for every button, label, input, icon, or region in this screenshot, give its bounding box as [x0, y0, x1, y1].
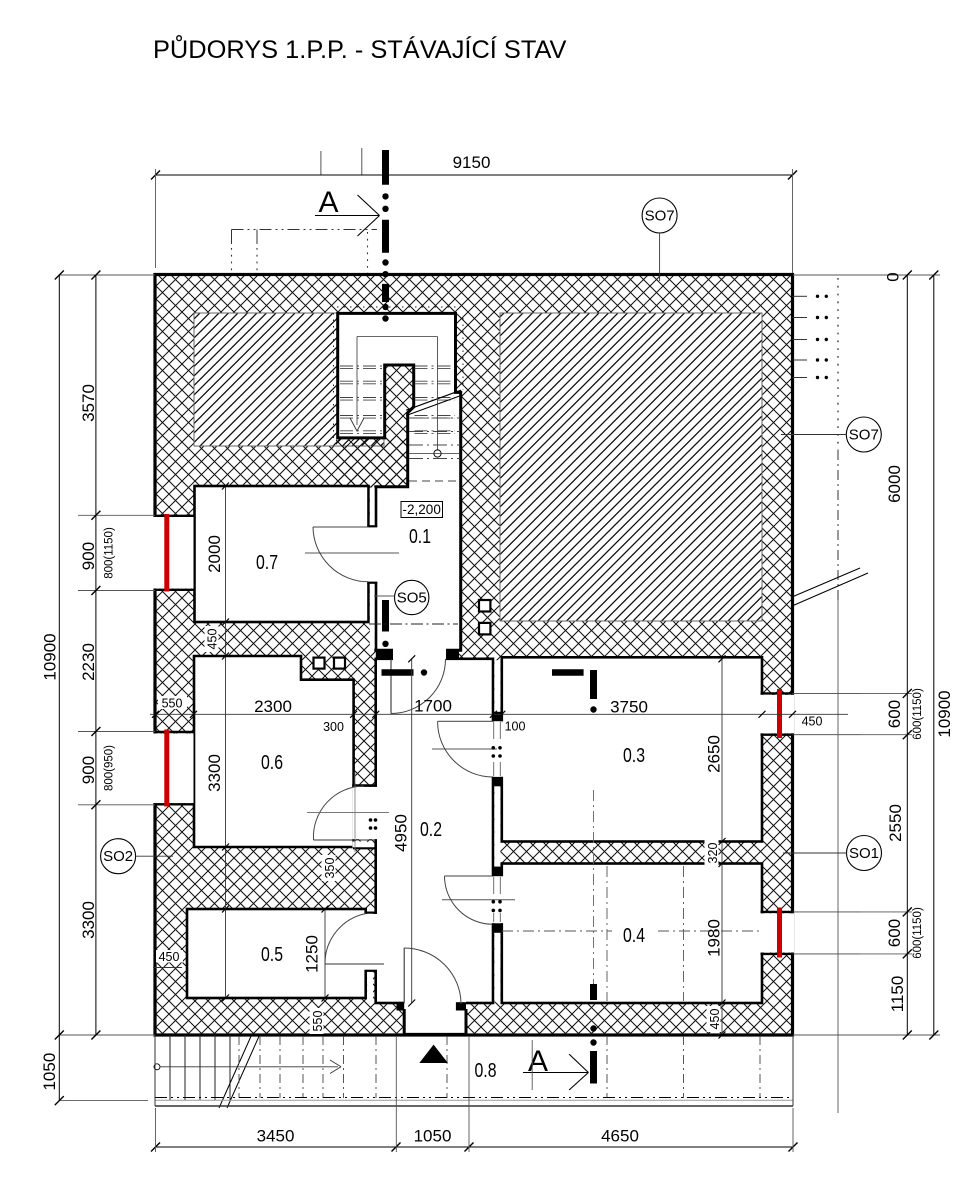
svg-text:450: 450: [708, 1009, 722, 1030]
svg-text:SO7: SO7: [849, 427, 879, 444]
svg-text:0: 0: [884, 272, 903, 281]
svg-text:350: 350: [323, 858, 337, 879]
svg-text:3300: 3300: [205, 754, 224, 792]
svg-text:4950: 4950: [392, 814, 411, 852]
svg-text:450: 450: [206, 629, 220, 650]
svg-text:3750: 3750: [610, 698, 648, 717]
svg-text:800(1150): 800(1150): [104, 527, 116, 579]
svg-text:SO5: SO5: [397, 590, 427, 607]
svg-text:0.5: 0.5: [261, 944, 283, 966]
svg-text:3300: 3300: [79, 901, 98, 939]
svg-text:1980: 1980: [705, 919, 724, 957]
svg-text:PŮDORYS 1.P.P. - STÁVAJÍCÍ STA: PŮDORYS 1.P.P. - STÁVAJÍCÍ STAV: [153, 33, 567, 64]
svg-text:600: 600: [885, 919, 904, 947]
svg-text:450: 450: [159, 950, 180, 964]
svg-text:9150: 9150: [453, 153, 491, 172]
svg-text:900: 900: [79, 756, 98, 784]
svg-text:2650: 2650: [705, 735, 724, 773]
svg-text:2000: 2000: [205, 535, 224, 573]
svg-text:1700: 1700: [414, 697, 452, 716]
svg-text:2550: 2550: [886, 804, 905, 842]
svg-text:900: 900: [79, 542, 98, 570]
svg-text:A: A: [318, 186, 338, 219]
svg-text:1150: 1150: [888, 976, 907, 1013]
svg-text:3450: 3450: [257, 1127, 295, 1146]
svg-text:SO7: SO7: [645, 208, 675, 225]
svg-text:4650: 4650: [601, 1127, 639, 1146]
svg-text:10900: 10900: [41, 633, 60, 680]
svg-text:450: 450: [802, 715, 823, 729]
svg-text:550: 550: [311, 1011, 325, 1032]
svg-text:600: 600: [885, 700, 904, 728]
svg-text:100: 100: [505, 720, 526, 734]
svg-text:0.8: 0.8: [475, 1060, 497, 1082]
svg-text:SO2: SO2: [103, 848, 133, 865]
svg-text:300: 300: [323, 720, 344, 734]
svg-text:0.3: 0.3: [623, 745, 645, 767]
svg-text:SO1: SO1: [849, 845, 879, 862]
svg-text:3570: 3570: [79, 384, 98, 422]
svg-text:2300: 2300: [254, 697, 292, 716]
svg-text:600(1150): 600(1150): [912, 688, 924, 740]
svg-text:0.6: 0.6: [261, 752, 283, 774]
svg-text:A: A: [528, 1045, 548, 1078]
svg-text:1050: 1050: [40, 1053, 59, 1091]
svg-text:0.2: 0.2: [420, 819, 442, 841]
svg-text:6000: 6000: [885, 465, 904, 503]
svg-text:1050: 1050: [414, 1127, 452, 1146]
svg-text:320: 320: [706, 843, 720, 864]
svg-text:0.7: 0.7: [256, 552, 278, 574]
svg-text:0.1: 0.1: [409, 526, 431, 548]
svg-text:0.4: 0.4: [623, 925, 645, 947]
svg-text:550: 550: [162, 697, 183, 711]
svg-text:800(950): 800(950): [104, 745, 116, 791]
svg-text:2230: 2230: [79, 643, 98, 681]
svg-text:-2,200: -2,200: [403, 502, 441, 517]
svg-text:600(1150): 600(1150): [912, 907, 924, 959]
svg-text:10900: 10900: [935, 690, 954, 737]
svg-text:1250: 1250: [303, 935, 322, 973]
